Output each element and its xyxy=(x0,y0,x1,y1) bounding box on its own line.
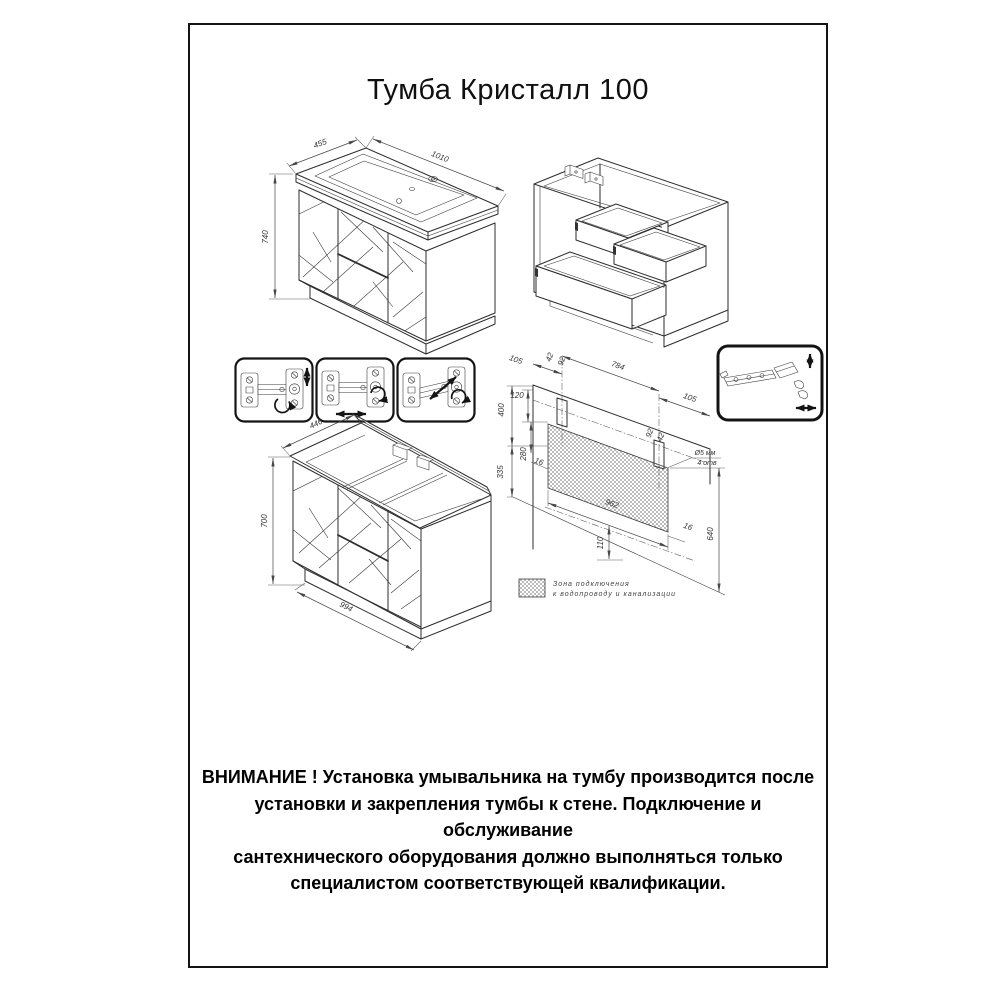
hole-note-line2: 4 отв xyxy=(697,460,717,467)
hinge-icon xyxy=(241,369,303,409)
dim-label-700: 700 xyxy=(260,514,269,528)
dim-label-994: 994 xyxy=(338,600,354,614)
legend: Зона подключения к водопроводу и канализ… xyxy=(519,579,676,598)
warning-line: установки и закрепления тумбы к стене. П… xyxy=(196,791,820,844)
dim-label-105-left: 105 xyxy=(508,353,524,366)
legend-line1: Зона подключения xyxy=(553,580,630,588)
dim-label-105-right: 105 xyxy=(682,391,698,404)
warning-line: сантехнического оборудования должно выпо… xyxy=(196,844,820,871)
legend-line2: к водопроводу и канализации xyxy=(553,590,676,598)
dim-label-42-left: 42 xyxy=(544,351,556,363)
page-title: Тумба Кристалл 100 xyxy=(188,74,828,107)
hinge-icon xyxy=(403,367,465,407)
plumbing-zone-hatch xyxy=(548,424,668,532)
dim-label-400: 400 xyxy=(497,403,506,417)
warning-line: ВНИМАНИЕ ! Установка умывальника на тумб… xyxy=(196,764,820,791)
warning-text: ВНИМАНИЕ ! Установка умывальника на тумб… xyxy=(196,764,820,897)
warning-line: специалистом соответствующей квалификаци… xyxy=(196,870,820,897)
cabinet-drawing: 446 700 994 xyxy=(253,413,523,658)
dim-label-16-left: 16 xyxy=(533,456,545,468)
wall-mounting-layout: 105 42 92 784 105 92 42 120 280 400 335 … xyxy=(495,322,755,622)
drawer-panels xyxy=(535,204,706,329)
dim-label-280: 280 xyxy=(519,447,528,462)
dim-label-1010: 1010 xyxy=(430,149,450,164)
dim-label-120: 120 xyxy=(510,391,524,400)
dim-label-640: 640 xyxy=(706,527,715,541)
instruction-page: Тумба Кристалл 100 xyxy=(0,0,1000,1000)
cabinet-body xyxy=(289,461,491,639)
vanity-with-sink-drawing: 455 1010 740 xyxy=(253,132,523,364)
dim-label-92-left: 92 xyxy=(556,355,568,367)
dim-label-455: 455 xyxy=(312,137,328,150)
dim-label-446: 446 xyxy=(308,417,324,431)
dim-label-335: 335 xyxy=(496,465,505,479)
dim-label-784: 784 xyxy=(610,359,626,372)
legend-hatch-swatch xyxy=(519,579,545,597)
dim-label-110: 110 xyxy=(596,536,605,549)
dim-label-740: 740 xyxy=(261,230,270,244)
hole-note-line1: Ø5 мм xyxy=(694,450,716,457)
dim-label-16-right: 16 xyxy=(682,521,694,533)
